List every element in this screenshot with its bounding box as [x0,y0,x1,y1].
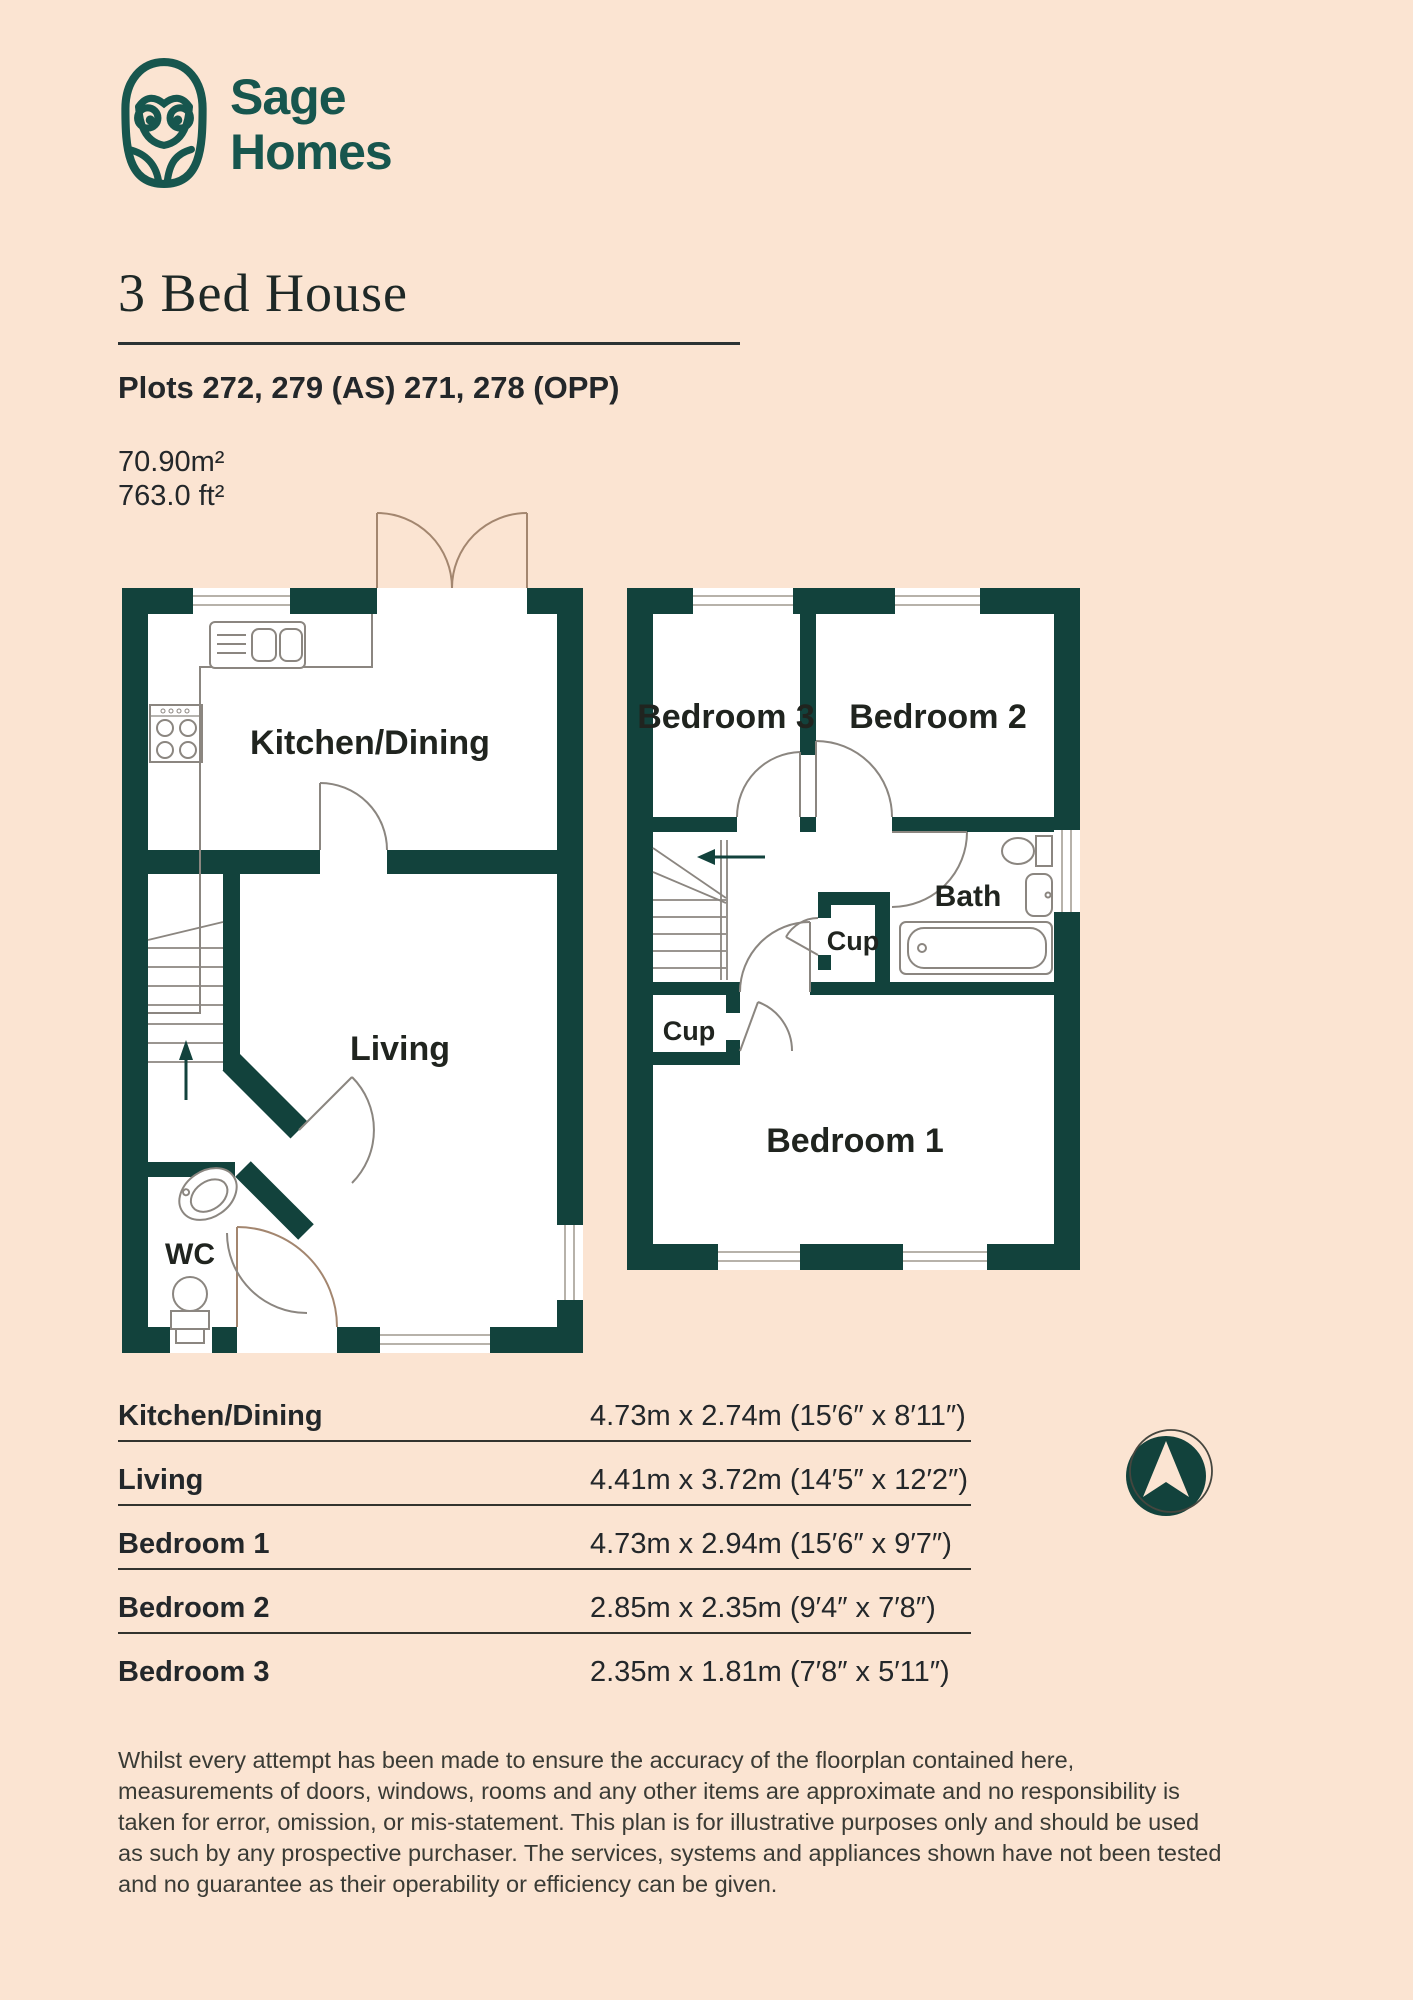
ground-floor-plan: Kitchen/Dining Living WC [122,513,583,1353]
bath-toilet-icon [1002,836,1052,866]
room-label-bedroom2: Bedroom 2 [849,698,1027,736]
sink-icon [210,622,305,668]
room-name: Bedroom 1 [118,1528,269,1561]
french-door-opening [377,588,527,614]
row-divider [118,1632,971,1634]
room-label-living: Living [350,1030,450,1068]
brochure-page: Sage Homes 3 Bed House Plots 272, 279 (A… [0,0,1413,2000]
disclaimer-line: measurements of doors, windows, rooms an… [118,1776,1221,1807]
room-label-bedroom1: Bedroom 1 [766,1122,944,1160]
room-name: Bedroom 3 [118,1656,269,1689]
interior [148,614,557,1327]
bath-tub-icon [900,922,1052,974]
room-size: 2.35m x 1.81m (7′8″ x 5′11″) [590,1656,950,1689]
disclaimer: Whilst every attempt has been made to en… [118,1745,1221,1900]
table-row: Bedroom 1 4.73m x 2.94m (15′6″ x 9′7″) [118,1520,971,1584]
table-row: Living 4.41m x 3.72m (14′5″ x 12′2″) [118,1456,971,1520]
row-divider [118,1504,971,1506]
room-label-kitchen-dining: Kitchen/Dining [250,724,490,762]
table-row: Bedroom 2 2.85m x 2.35m (9′4″ x 7′8″) [118,1584,971,1648]
disclaimer-line: taken for error, omission, or mis-statem… [118,1807,1221,1838]
french-doors [377,513,527,588]
room-name: Living [118,1464,203,1497]
room-label-wc: WC [165,1238,215,1271]
room-label-bedroom3: Bedroom 3 [637,698,815,736]
disclaimer-line: Whilst every attempt has been made to en… [118,1745,1221,1776]
room-label-cup-upper: Cup [827,926,879,956]
north-arrow-icon [1126,1430,1212,1516]
first-floor-plan: Bedroom 3 Bedroom 2 Bath Cup Cup Bedroom… [627,588,1080,1270]
room-label-cup-lower: Cup [663,1016,715,1046]
disclaimer-line: and no guarantee as their operability or… [118,1869,1221,1900]
disclaimer-line: as such by any prospective purchaser. Th… [118,1838,1221,1869]
room-size: 4.41m x 3.72m (14′5″ x 12′2″) [590,1464,968,1497]
table-row: Bedroom 3 2.35m x 1.81m (7′8″ x 5′11″) [118,1648,971,1712]
room-label-bath: Bath [935,880,1002,913]
row-divider [118,1568,971,1570]
bath-basin-icon [1026,874,1052,916]
row-divider [118,1440,971,1442]
room-size: 4.73m x 2.94m (15′6″ x 9′7″) [590,1528,952,1561]
room-size: 4.73m x 2.74m (15′6″ x 8′11″) [590,1400,966,1433]
room-name: Kitchen/Dining [118,1400,323,1433]
room-size: 2.85m x 2.35m (9′4″ x 7′8″) [590,1592,936,1625]
front-door-opening [237,1327,337,1353]
wc-toilet-icon [171,1277,209,1343]
room-name: Bedroom 2 [118,1592,269,1625]
table-row: Kitchen/Dining 4.73m x 2.74m (15′6″ x 8′… [118,1392,971,1456]
dimensions-table: Kitchen/Dining 4.73m x 2.74m (15′6″ x 8′… [118,1392,971,1722]
